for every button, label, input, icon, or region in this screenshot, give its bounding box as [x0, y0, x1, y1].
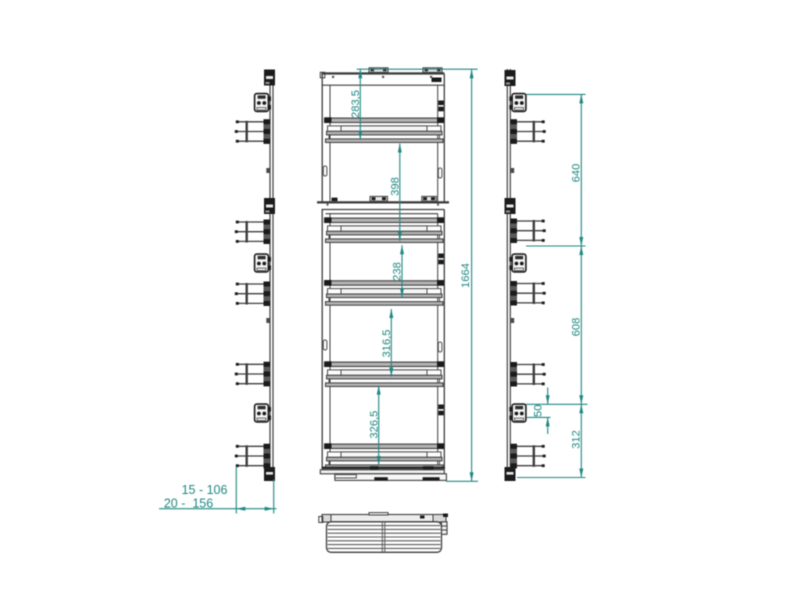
svg-text:398: 398 — [389, 177, 401, 196]
svg-text:50: 50 — [533, 405, 545, 417]
svg-text:1664: 1664 — [460, 263, 472, 288]
svg-text:608: 608 — [570, 318, 582, 337]
svg-text:312: 312 — [570, 430, 582, 449]
svg-text:15 - 106: 15 - 106 — [182, 483, 228, 497]
svg-text:283,5: 283,5 — [350, 90, 362, 118]
svg-text:316,5: 316,5 — [381, 330, 393, 358]
svg-text:238: 238 — [392, 262, 404, 281]
svg-text:326,5: 326,5 — [369, 411, 381, 439]
svg-text:640: 640 — [570, 164, 582, 183]
svg-text:20 - 156: 20 - 156 — [164, 496, 213, 510]
